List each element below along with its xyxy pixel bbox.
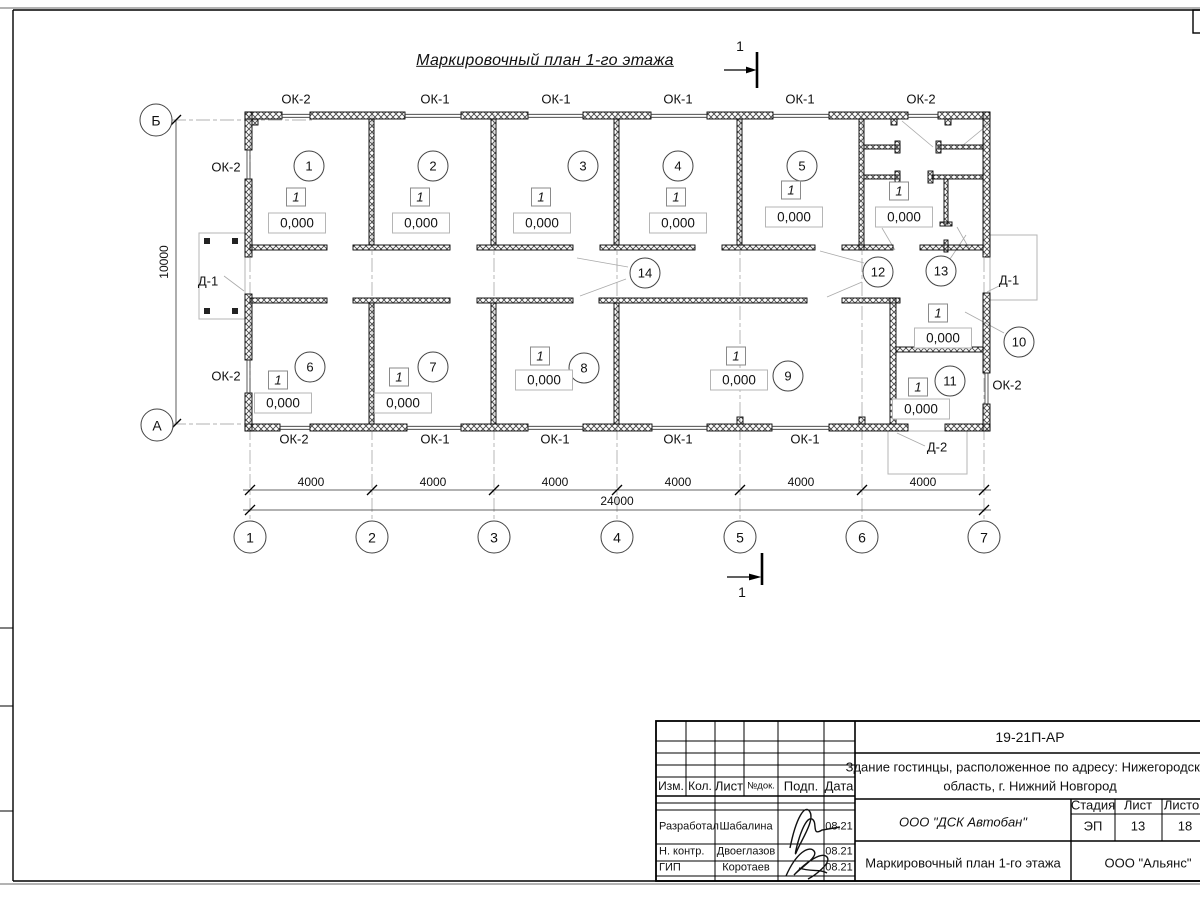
room-number-bubble: 7 — [418, 352, 449, 383]
section-mark-label-top: 1 — [736, 38, 744, 54]
doc-number: 19-21П-АР — [995, 729, 1064, 745]
staff-name: Двоеглазов — [717, 846, 775, 859]
titleblock-column-header: №док. — [747, 782, 775, 793]
room-number-bubble: 1 — [294, 151, 325, 182]
unit-marker: 1 — [889, 182, 909, 201]
window-label-bottom: ОК-1 — [790, 433, 819, 448]
unit-marker: 1 — [286, 188, 306, 207]
grid-axis-bubble: А — [141, 409, 174, 442]
window-label-top: ОК-1 — [541, 93, 570, 108]
stage-header: Стадия — [1071, 799, 1115, 814]
grid-axis-bubble: 1 — [234, 521, 267, 554]
project-name-line1: Здание гостинцы, расположенное по адресу… — [846, 761, 1200, 776]
room-number-bubble: 8 — [569, 353, 600, 384]
staff-date: 08.21 — [825, 846, 853, 859]
stage-value: ЭП — [1084, 820, 1103, 835]
unit-marker: 1 — [530, 347, 550, 366]
titleblock-column-header: Дата — [825, 780, 854, 795]
project-name-line2: область, г. Нижний Новгород — [943, 780, 1116, 795]
room-number-bubble: 6 — [295, 352, 326, 383]
drawing-sheet: Маркировочный план 1-го этажа 1 1 24000 … — [0, 0, 1200, 900]
staff-date: 08.21 — [825, 821, 853, 834]
elevation-mark: 0,000 — [392, 213, 450, 234]
dimension-span: 4000 — [542, 476, 569, 490]
staff-role: Н. контр. — [659, 846, 704, 859]
grid-axis-bubble: 7 — [968, 521, 1001, 554]
staff-date: 08.21 — [825, 862, 853, 875]
titleblock-column-header: Лист — [715, 780, 743, 795]
drawing-name: Маркировочный план 1-го этажа — [865, 857, 1061, 872]
elevation-mark: 0,000 — [515, 370, 573, 391]
grid-axis-bubble: 2 — [356, 521, 389, 554]
titleblock-column-header: Изм. — [658, 780, 684, 794]
unit-marker: 1 — [781, 181, 801, 200]
dimension-span: 4000 — [665, 476, 692, 490]
grid-axis-bubble: 6 — [846, 521, 879, 554]
staff-role: ГИП — [659, 862, 681, 875]
window-label-left: ОК-2 — [211, 370, 240, 385]
dimension-span: 4000 — [788, 476, 815, 490]
window-label-top: ОК-1 — [663, 93, 692, 108]
staff-name: Шабалина — [719, 821, 772, 834]
titleblock-column-header: Кол. — [688, 780, 712, 794]
room-number-bubble: 9 — [773, 361, 804, 392]
unit-marker: 1 — [928, 304, 948, 323]
unit-marker: 1 — [410, 188, 430, 207]
room-number-bubble: 2 — [418, 151, 449, 182]
elevation-mark: 0,000 — [268, 213, 326, 234]
dimension-span: 4000 — [910, 476, 937, 490]
elevation-mark: 0,000 — [765, 207, 823, 228]
elevation-mark: 0,000 — [649, 213, 707, 234]
unit-marker: 1 — [531, 188, 551, 207]
contractor-name: ООО "ДСК Автобан" — [899, 816, 1027, 831]
elevation-mark: 0,000 — [374, 393, 432, 414]
staff-role: Разработал — [659, 821, 719, 834]
door-label: Д-1 — [999, 274, 1019, 289]
elevation-mark: 0,000 — [254, 393, 312, 414]
room-number-bubble: 10 — [1004, 327, 1035, 358]
unit-marker: 1 — [268, 371, 288, 390]
dimension-total: 24000 — [600, 495, 633, 509]
unit-marker: 1 — [908, 378, 928, 397]
dimension-span: 4000 — [298, 476, 325, 490]
window-label-bottom: ОК-1 — [540, 433, 569, 448]
room-number-bubble: 13 — [926, 256, 957, 287]
room-number-bubble: 3 — [568, 151, 599, 182]
unit-marker: 1 — [726, 347, 746, 366]
grid-axis-bubble: 5 — [724, 521, 757, 554]
dimension-height: 10000 — [158, 245, 172, 278]
window-label-top: ОК-2 — [906, 93, 935, 108]
grid-axis-bubble: 3 — [478, 521, 511, 554]
room-number-bubble: 4 — [663, 151, 694, 182]
unit-marker: 1 — [389, 368, 409, 387]
room-number-bubble: 14 — [630, 258, 661, 289]
room-number-bubble: 12 — [863, 257, 894, 288]
section-marks — [724, 52, 762, 585]
sheets-value: 18 — [1178, 820, 1192, 835]
window-label-bottom: ОК-1 — [663, 433, 692, 448]
sheet-value: 13 — [1131, 820, 1145, 835]
elevation-mark: 0,000 — [892, 399, 950, 420]
grid-axis-bubble: 4 — [601, 521, 634, 554]
door-label: Д-1 — [198, 275, 218, 290]
grid-axis-bubble: Б — [140, 104, 173, 137]
elevation-mark: 0,000 — [875, 207, 933, 228]
elevation-mark: 0,000 — [710, 370, 768, 391]
elevation-mark: 0,000 — [513, 213, 571, 234]
section-mark-label-bottom: 1 — [738, 584, 746, 600]
company-name: ООО "Альянс" — [1105, 857, 1192, 872]
drawing-title: Маркировочный план 1-го этажа — [416, 52, 674, 70]
door-label: Д-2 — [927, 441, 947, 456]
titleblock-column-header: Подп. — [784, 780, 819, 795]
window-label-left: ОК-2 — [211, 161, 240, 176]
room-number-bubble: 5 — [787, 151, 818, 182]
dimension-span: 4000 — [420, 476, 447, 490]
window-label-bottom: ОК-1 — [420, 433, 449, 448]
unit-marker: 1 — [666, 188, 686, 207]
window-label-top: ОК-1 — [785, 93, 814, 108]
room-number-bubble: 11 — [935, 366, 966, 397]
window-label-bottom: ОК-2 — [279, 433, 308, 448]
sheet-header: Лист — [1124, 799, 1152, 814]
elevation-mark: 0,000 — [914, 328, 972, 349]
window-label-top: ОК-2 — [281, 93, 310, 108]
sheets-header: Листов — [1164, 799, 1200, 814]
window-label-right: ОК-2 — [992, 379, 1021, 394]
window-label-top: ОК-1 — [420, 93, 449, 108]
staff-name: Коротаев — [722, 862, 770, 875]
